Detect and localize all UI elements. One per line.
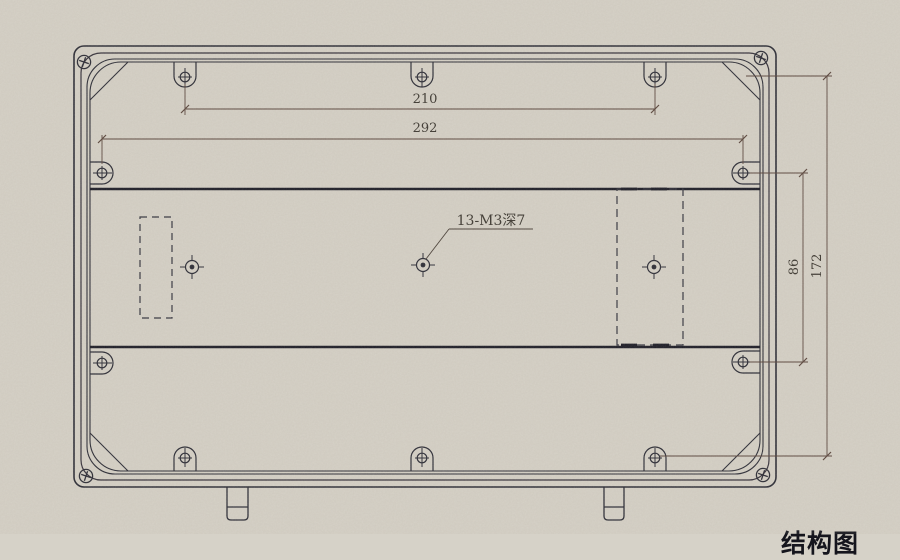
bottom-feet: [227, 487, 624, 520]
panel-chamfer-bottom-right: [722, 433, 760, 471]
boss-bottom-center: [411, 447, 433, 471]
foot-left: [227, 487, 248, 520]
enclosure-outer-outline: [74, 46, 776, 487]
panel-chamfer-bottom-left: [90, 433, 128, 471]
tapped-hole-center: [411, 253, 435, 277]
hole-callout-leader: [426, 229, 533, 259]
dashed-region-right: [617, 189, 683, 345]
foot-right: [604, 487, 624, 520]
leader-line: [426, 229, 449, 259]
tapped-hole-left: [180, 255, 204, 279]
dim-210-label: 210: [413, 92, 438, 107]
corner-screw-bottom-left: [79, 469, 92, 482]
boss-top-center: [411, 62, 433, 87]
enclosure-drawing: 210 292 86 172 13-M3深7: [0, 0, 900, 534]
boss-bottom-right: [644, 447, 666, 471]
dim-292-label: 292: [413, 121, 438, 136]
dim-86-label: 86: [787, 259, 802, 276]
boss-top-right: [644, 62, 666, 87]
boss-left-upper: [90, 162, 113, 184]
dim-172: [660, 72, 832, 460]
panel-chamfer-top-right: [722, 62, 760, 100]
corner-screw-bottom-right: [756, 468, 769, 481]
corner-screw-top-right: [754, 51, 767, 64]
panel-chamfer-top-left: [90, 62, 128, 100]
hidden-regions: [140, 189, 683, 345]
corner-screw-top-left: [77, 55, 90, 68]
dim-292: [98, 135, 747, 164]
boss-bottom-left: [174, 447, 196, 471]
dimensions: [98, 72, 832, 460]
boss-left-lower: [90, 352, 113, 374]
tapped-hole-right: [642, 255, 666, 279]
enclosure-outlines: [74, 46, 776, 487]
caption-partial-text: 结构图: [781, 524, 859, 560]
dashed-region-left: [140, 217, 172, 318]
dim-172-label: 172: [810, 254, 825, 279]
middle-tapped-holes: [180, 253, 666, 279]
scanned-drawing-page: 210 292 86 172 13-M3深7 结构图: [0, 0, 900, 534]
boss-top-left: [174, 62, 196, 87]
hole-callout-label: 13-M3深7: [457, 213, 526, 229]
